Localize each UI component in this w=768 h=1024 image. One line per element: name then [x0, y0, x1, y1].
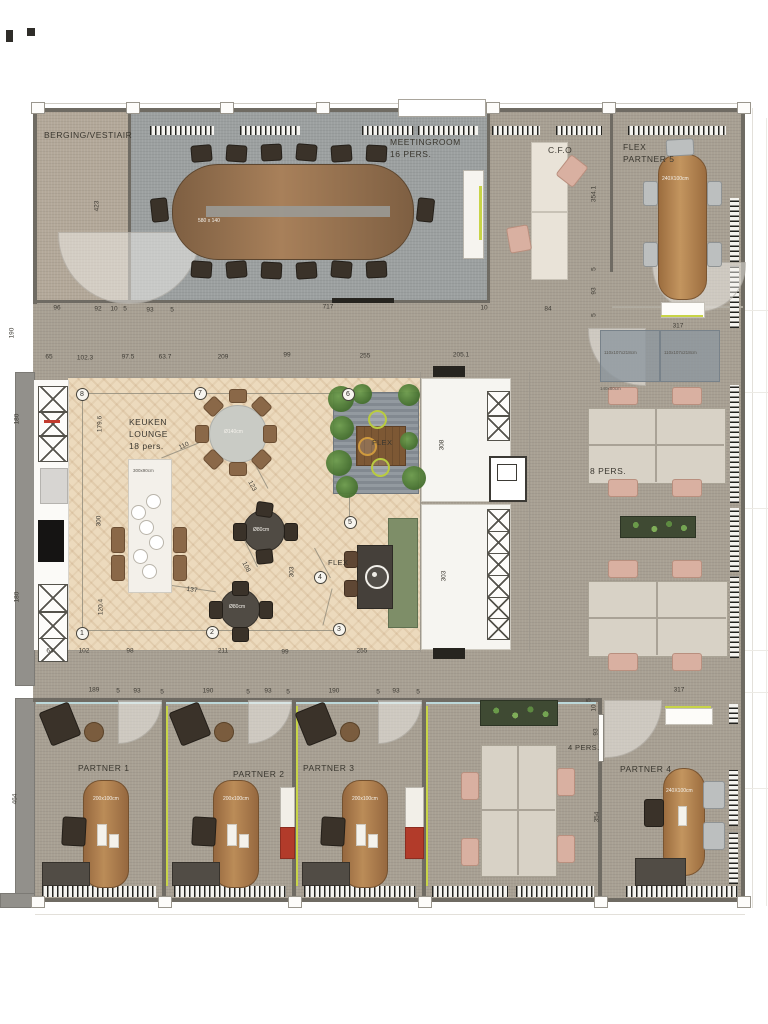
chair	[703, 822, 725, 850]
floor-plan-canvas: BERGING/VESTIAIRMEETINGROOM16 PERS.C.F.O…	[0, 0, 768, 1024]
dim-label: 93	[591, 287, 598, 294]
chair	[672, 479, 702, 497]
desk-divider	[588, 617, 726, 619]
vent-grille	[240, 126, 300, 135]
dim-label: 180	[14, 414, 21, 425]
dim-label: 179.6	[97, 416, 104, 432]
planter-ring	[368, 410, 387, 429]
wall-marker-6: 6	[342, 388, 355, 401]
chair	[707, 242, 722, 267]
desk-accessory	[239, 834, 249, 848]
island-size: 300x90cm	[133, 468, 154, 473]
vent-grille	[516, 886, 594, 897]
appliance-mark	[44, 420, 60, 423]
column	[31, 896, 45, 908]
vent-grille	[729, 770, 738, 826]
room-fp5-1: FLEX	[623, 142, 646, 152]
chair	[229, 462, 247, 476]
dim-label: 5	[116, 688, 120, 695]
room-partner2: PARTNER 2	[233, 769, 284, 779]
dim-label: 10	[591, 704, 598, 711]
label-flex-bench: FLEX	[328, 558, 348, 567]
chair	[320, 816, 345, 846]
room-partner4: PARTNER 4	[620, 764, 671, 774]
chair	[173, 555, 187, 581]
dim-label: 211	[218, 648, 228, 655]
desk-accessory	[356, 824, 366, 846]
desk-divider	[588, 444, 724, 446]
planter-box	[620, 516, 696, 538]
vent-grille	[150, 126, 214, 135]
chair	[225, 144, 247, 162]
door	[398, 99, 486, 117]
cabinet-unit	[487, 416, 510, 441]
column	[316, 102, 330, 114]
dim-label: 5	[591, 313, 598, 317]
vent-grille	[432, 886, 508, 897]
desk-divider	[481, 809, 555, 811]
wall-board	[665, 708, 713, 725]
cabinet-unit	[38, 386, 68, 412]
fp5-table-size: 240X100cm	[662, 176, 689, 182]
desk-accessory	[97, 824, 107, 846]
dim-label: 300	[96, 516, 103, 527]
vent-grille	[729, 704, 738, 724]
room-keuken-3: 18 pers.	[129, 441, 164, 451]
chair	[644, 799, 664, 827]
wall-marker-5: 5	[344, 516, 357, 529]
column	[418, 896, 432, 908]
doormat	[433, 366, 465, 377]
chair	[608, 479, 638, 497]
dim-label: 5	[416, 689, 420, 696]
wall	[33, 108, 37, 304]
room-border-line	[68, 377, 420, 378]
chair	[461, 772, 479, 800]
chair	[284, 523, 298, 541]
dim-label: 93	[264, 688, 271, 695]
vent-grille	[730, 385, 739, 503]
dim-label: 464	[12, 794, 19, 805]
cabinet-unit	[487, 509, 510, 532]
plant	[336, 476, 358, 498]
chair	[608, 653, 638, 671]
cabinet-unit	[487, 531, 510, 554]
dim-label: 717	[323, 304, 334, 311]
column	[288, 896, 302, 908]
cabinet-unit	[38, 612, 68, 640]
vent-grille	[628, 126, 726, 135]
chair	[190, 144, 212, 163]
meeting-table-size: 580 x 140	[198, 218, 220, 224]
wall-cabinet	[405, 787, 424, 829]
dim-label: 308	[439, 440, 446, 451]
chair	[168, 701, 211, 746]
dim-label: 180	[14, 592, 21, 603]
chair	[366, 144, 388, 162]
chair	[295, 143, 317, 162]
margin-line	[745, 788, 768, 789]
dim-label: 123	[246, 480, 257, 493]
cooktop	[38, 520, 64, 562]
plant	[398, 384, 420, 406]
partition-track-line	[88, 393, 344, 394]
vent-grille	[730, 198, 739, 262]
door-swing-arc	[378, 700, 422, 744]
p3-desk-size: 200x100cm	[352, 796, 378, 802]
door-swing-arc	[604, 700, 662, 758]
room-4pers: 4 PERS.	[568, 743, 600, 752]
room-keuken-1: KEUKEN	[129, 417, 167, 427]
chair	[191, 816, 216, 846]
dim-label: 255	[360, 353, 371, 360]
cabinet	[635, 858, 686, 886]
chair	[672, 387, 702, 405]
vent-grille	[730, 508, 739, 572]
wall-marker-4: 4	[314, 571, 327, 584]
accent-line	[665, 706, 711, 708]
dim-label: 98	[126, 648, 133, 655]
plant	[326, 450, 352, 476]
wall	[741, 108, 745, 902]
column	[737, 896, 751, 908]
plan-layer: BERGING/VESTIAIRMEETINGROOM16 PERS.C.F.O…	[0, 0, 768, 1024]
plant	[402, 466, 426, 490]
chair	[261, 143, 283, 161]
partition-track-line	[322, 588, 332, 625]
chair	[557, 768, 575, 796]
accent-line	[296, 706, 298, 886]
wall	[610, 112, 613, 272]
desk-cluster	[588, 581, 728, 657]
wardrobe-locker	[600, 330, 660, 382]
plant	[330, 416, 354, 440]
room-partner1: PARTNER 1	[78, 763, 129, 773]
lamp-ring	[365, 565, 389, 589]
desk-accessory	[368, 834, 378, 848]
facade-wall	[0, 893, 35, 908]
dim-label: 92	[94, 306, 101, 313]
room-berging: BERGING/VESTIAIR	[44, 130, 132, 140]
dim-label: 5	[170, 307, 174, 314]
chair	[643, 181, 658, 206]
chair	[38, 701, 81, 746]
chair	[225, 260, 247, 279]
wardrobe-locker	[660, 330, 720, 382]
room-fp5-2: PARTNER 5	[623, 154, 674, 164]
margin-line	[745, 310, 768, 311]
dim-label: 5	[586, 698, 593, 702]
chair	[608, 560, 638, 578]
chair	[643, 242, 658, 267]
dim-label: 65	[45, 354, 52, 361]
dim-label: 99	[281, 649, 288, 656]
dim-label: 102.3	[77, 355, 93, 362]
desk-accessory	[678, 806, 687, 826]
plant	[400, 432, 418, 450]
vent-grille	[729, 832, 738, 884]
chair	[232, 627, 249, 642]
column	[737, 102, 751, 114]
dim-label: 93	[133, 688, 140, 695]
bar-stool	[139, 520, 154, 535]
wall-marker-3: 3	[333, 623, 346, 636]
dim-label: 190	[9, 328, 16, 339]
chair	[461, 838, 479, 866]
red-cabinet	[280, 827, 295, 859]
room-cfo: C.F.O	[548, 145, 572, 155]
room-keuken-2: LOUNGE	[129, 429, 168, 439]
door-leaf	[598, 714, 604, 762]
dim-label: 137	[186, 586, 198, 594]
dim-label: 317	[673, 323, 684, 330]
wall	[598, 698, 602, 714]
chair	[111, 527, 125, 553]
chair	[173, 527, 187, 553]
dim-label: 10	[110, 306, 117, 313]
chair	[259, 601, 273, 619]
cabinet-unit	[487, 553, 510, 576]
dim-label: 63	[46, 648, 53, 655]
cabinet-unit	[487, 575, 510, 598]
accent-line	[166, 706, 168, 886]
chair	[232, 581, 249, 596]
partition-track-line	[82, 399, 83, 631]
bistro2-size: Ø80cm	[229, 604, 245, 610]
margin-line	[35, 914, 745, 915]
wall-dark-segment	[332, 298, 394, 303]
dim-label: 5	[123, 306, 127, 313]
dim-label: 354.1	[591, 186, 598, 202]
dim-label: 190	[203, 688, 214, 695]
side-table	[84, 722, 104, 742]
dim-label: 5	[286, 689, 290, 696]
chair	[294, 701, 337, 746]
wall	[487, 112, 490, 302]
dim-label: 255	[357, 648, 368, 655]
door-swing-arc	[58, 232, 200, 304]
desk-accessory	[109, 834, 119, 848]
wall	[598, 758, 602, 902]
margin-line	[745, 692, 768, 693]
room-partner3: PARTNER 3	[303, 763, 354, 773]
planter-ring	[371, 458, 390, 477]
bar-stool	[133, 549, 148, 564]
column	[220, 102, 234, 114]
chair	[330, 260, 352, 279]
lounge-table-size: Ø140cm	[224, 429, 243, 435]
doormat	[433, 648, 465, 659]
chair	[703, 781, 725, 809]
bar-stool	[149, 535, 164, 550]
dim-label: 10	[480, 305, 487, 312]
door-swing-arc	[118, 700, 162, 744]
planter-box	[480, 700, 558, 726]
chair	[295, 261, 317, 279]
wall	[33, 898, 745, 902]
desk-cluster	[481, 745, 557, 877]
door-swing-arc	[248, 700, 292, 744]
chair	[330, 144, 352, 162]
bar-stool	[142, 564, 157, 579]
plant	[352, 384, 372, 404]
chair	[416, 197, 435, 223]
room-8pers: 8 PERS.	[590, 466, 626, 476]
accent-line	[479, 186, 482, 240]
accent-line	[661, 315, 703, 317]
chair	[255, 548, 273, 565]
p1-desk-size: 200x100cm	[93, 796, 119, 802]
column	[31, 102, 45, 114]
column	[126, 102, 140, 114]
cluster-desk-size: 140x80cm	[600, 386, 621, 391]
dim-label: 303	[289, 567, 296, 578]
chair	[707, 181, 722, 206]
bistro1-size: Ø80cm	[253, 527, 269, 533]
dim-label: 99	[283, 352, 290, 359]
vent-grille	[626, 886, 738, 897]
cabinet-unit	[38, 436, 68, 462]
cabinet-unit	[487, 618, 510, 640]
dim-label: 5	[246, 689, 250, 696]
dim-label: 190	[329, 688, 340, 695]
vent-grille	[362, 126, 414, 135]
side-table	[340, 722, 360, 742]
wall	[33, 300, 490, 303]
chair	[195, 425, 209, 443]
desk-accessory	[227, 824, 237, 846]
lamp-dot	[372, 572, 377, 577]
chair	[672, 653, 702, 671]
dim-label: 84	[544, 306, 551, 313]
room-border-line	[529, 372, 530, 652]
chair	[209, 601, 223, 619]
dim-label: 423	[94, 201, 101, 212]
chair	[672, 560, 702, 578]
vent-grille	[418, 126, 478, 135]
chair	[557, 835, 575, 863]
vent-grille	[730, 576, 739, 658]
dim-label: 189	[89, 687, 100, 694]
bar-stool	[146, 494, 161, 509]
table-runner	[206, 206, 390, 217]
dim-label: 93	[392, 688, 399, 695]
dim-label: 5	[160, 689, 164, 696]
chair	[150, 197, 169, 223]
room-meetingroom-pers: 16 PERS.	[390, 149, 431, 159]
column	[486, 102, 500, 114]
locker1-size: 110x107x218cm	[604, 350, 637, 355]
chair	[190, 260, 212, 278]
column	[602, 102, 616, 114]
side-table	[214, 722, 234, 742]
dim-label: 63.7	[159, 354, 172, 361]
chair	[229, 389, 247, 403]
dim-label: 205.1	[453, 352, 469, 359]
dim-label: 303	[441, 571, 448, 582]
cabinet-unit	[487, 391, 510, 416]
cabinet-unit	[487, 597, 510, 619]
dim-label: 5	[376, 689, 380, 696]
chair	[261, 261, 283, 279]
chair	[366, 260, 388, 278]
chair	[233, 523, 247, 541]
dim-label: 120.4	[98, 599, 105, 615]
dim-label: 97.5	[122, 354, 135, 361]
label-flex-platform: FLEX	[372, 438, 392, 447]
cfo-desk	[531, 212, 568, 280]
dim-label: 354	[594, 812, 601, 823]
chair	[506, 224, 532, 253]
wall-cabinet	[280, 787, 295, 829]
kitchen-sink	[40, 468, 68, 504]
cabinet	[42, 862, 90, 886]
wall-marker-8: 8	[76, 388, 89, 401]
room-meetingroom: MEETINGROOM	[390, 137, 461, 147]
wall-marker-2: 2	[206, 626, 219, 639]
margin-line	[35, 103, 745, 104]
dim-label: 209	[218, 354, 229, 361]
dim-label: 108	[240, 561, 251, 574]
chair	[255, 501, 274, 518]
wall-marker-7: 7	[194, 387, 207, 400]
column	[594, 896, 608, 908]
dim-label: 96	[53, 305, 60, 312]
red-cabinet	[405, 827, 424, 859]
cabinet	[302, 862, 350, 886]
margin-line	[745, 508, 768, 509]
chair	[263, 425, 277, 443]
bar-stool	[131, 505, 146, 520]
locker2-size: 110x107x218cm	[664, 350, 697, 355]
accent-line	[426, 706, 428, 886]
chair	[111, 555, 125, 581]
vent-grille	[492, 126, 540, 135]
dim-label: 110	[178, 441, 190, 452]
cabinet	[172, 862, 220, 886]
p2-desk-size: 200x100cm	[223, 796, 249, 802]
margin-mark	[6, 30, 13, 42]
vent-grille	[556, 126, 602, 135]
p4-table-size: 240X100cm	[666, 788, 693, 794]
wall-marker-1: 1	[76, 627, 89, 640]
cabinet-unit	[38, 584, 68, 612]
dim-label: 93	[146, 307, 153, 314]
elevator-car	[497, 464, 517, 481]
chair	[344, 580, 358, 597]
dim-label: 5	[591, 267, 598, 271]
margin-mark	[27, 28, 35, 36]
cabinet-unit	[38, 412, 68, 436]
dim-label: 317	[674, 687, 685, 694]
column	[158, 896, 172, 908]
margin-line	[745, 392, 768, 393]
dim-label: 102	[79, 648, 90, 655]
margin-line	[745, 650, 768, 651]
dim-label: 93	[593, 728, 600, 735]
chair	[61, 816, 86, 846]
